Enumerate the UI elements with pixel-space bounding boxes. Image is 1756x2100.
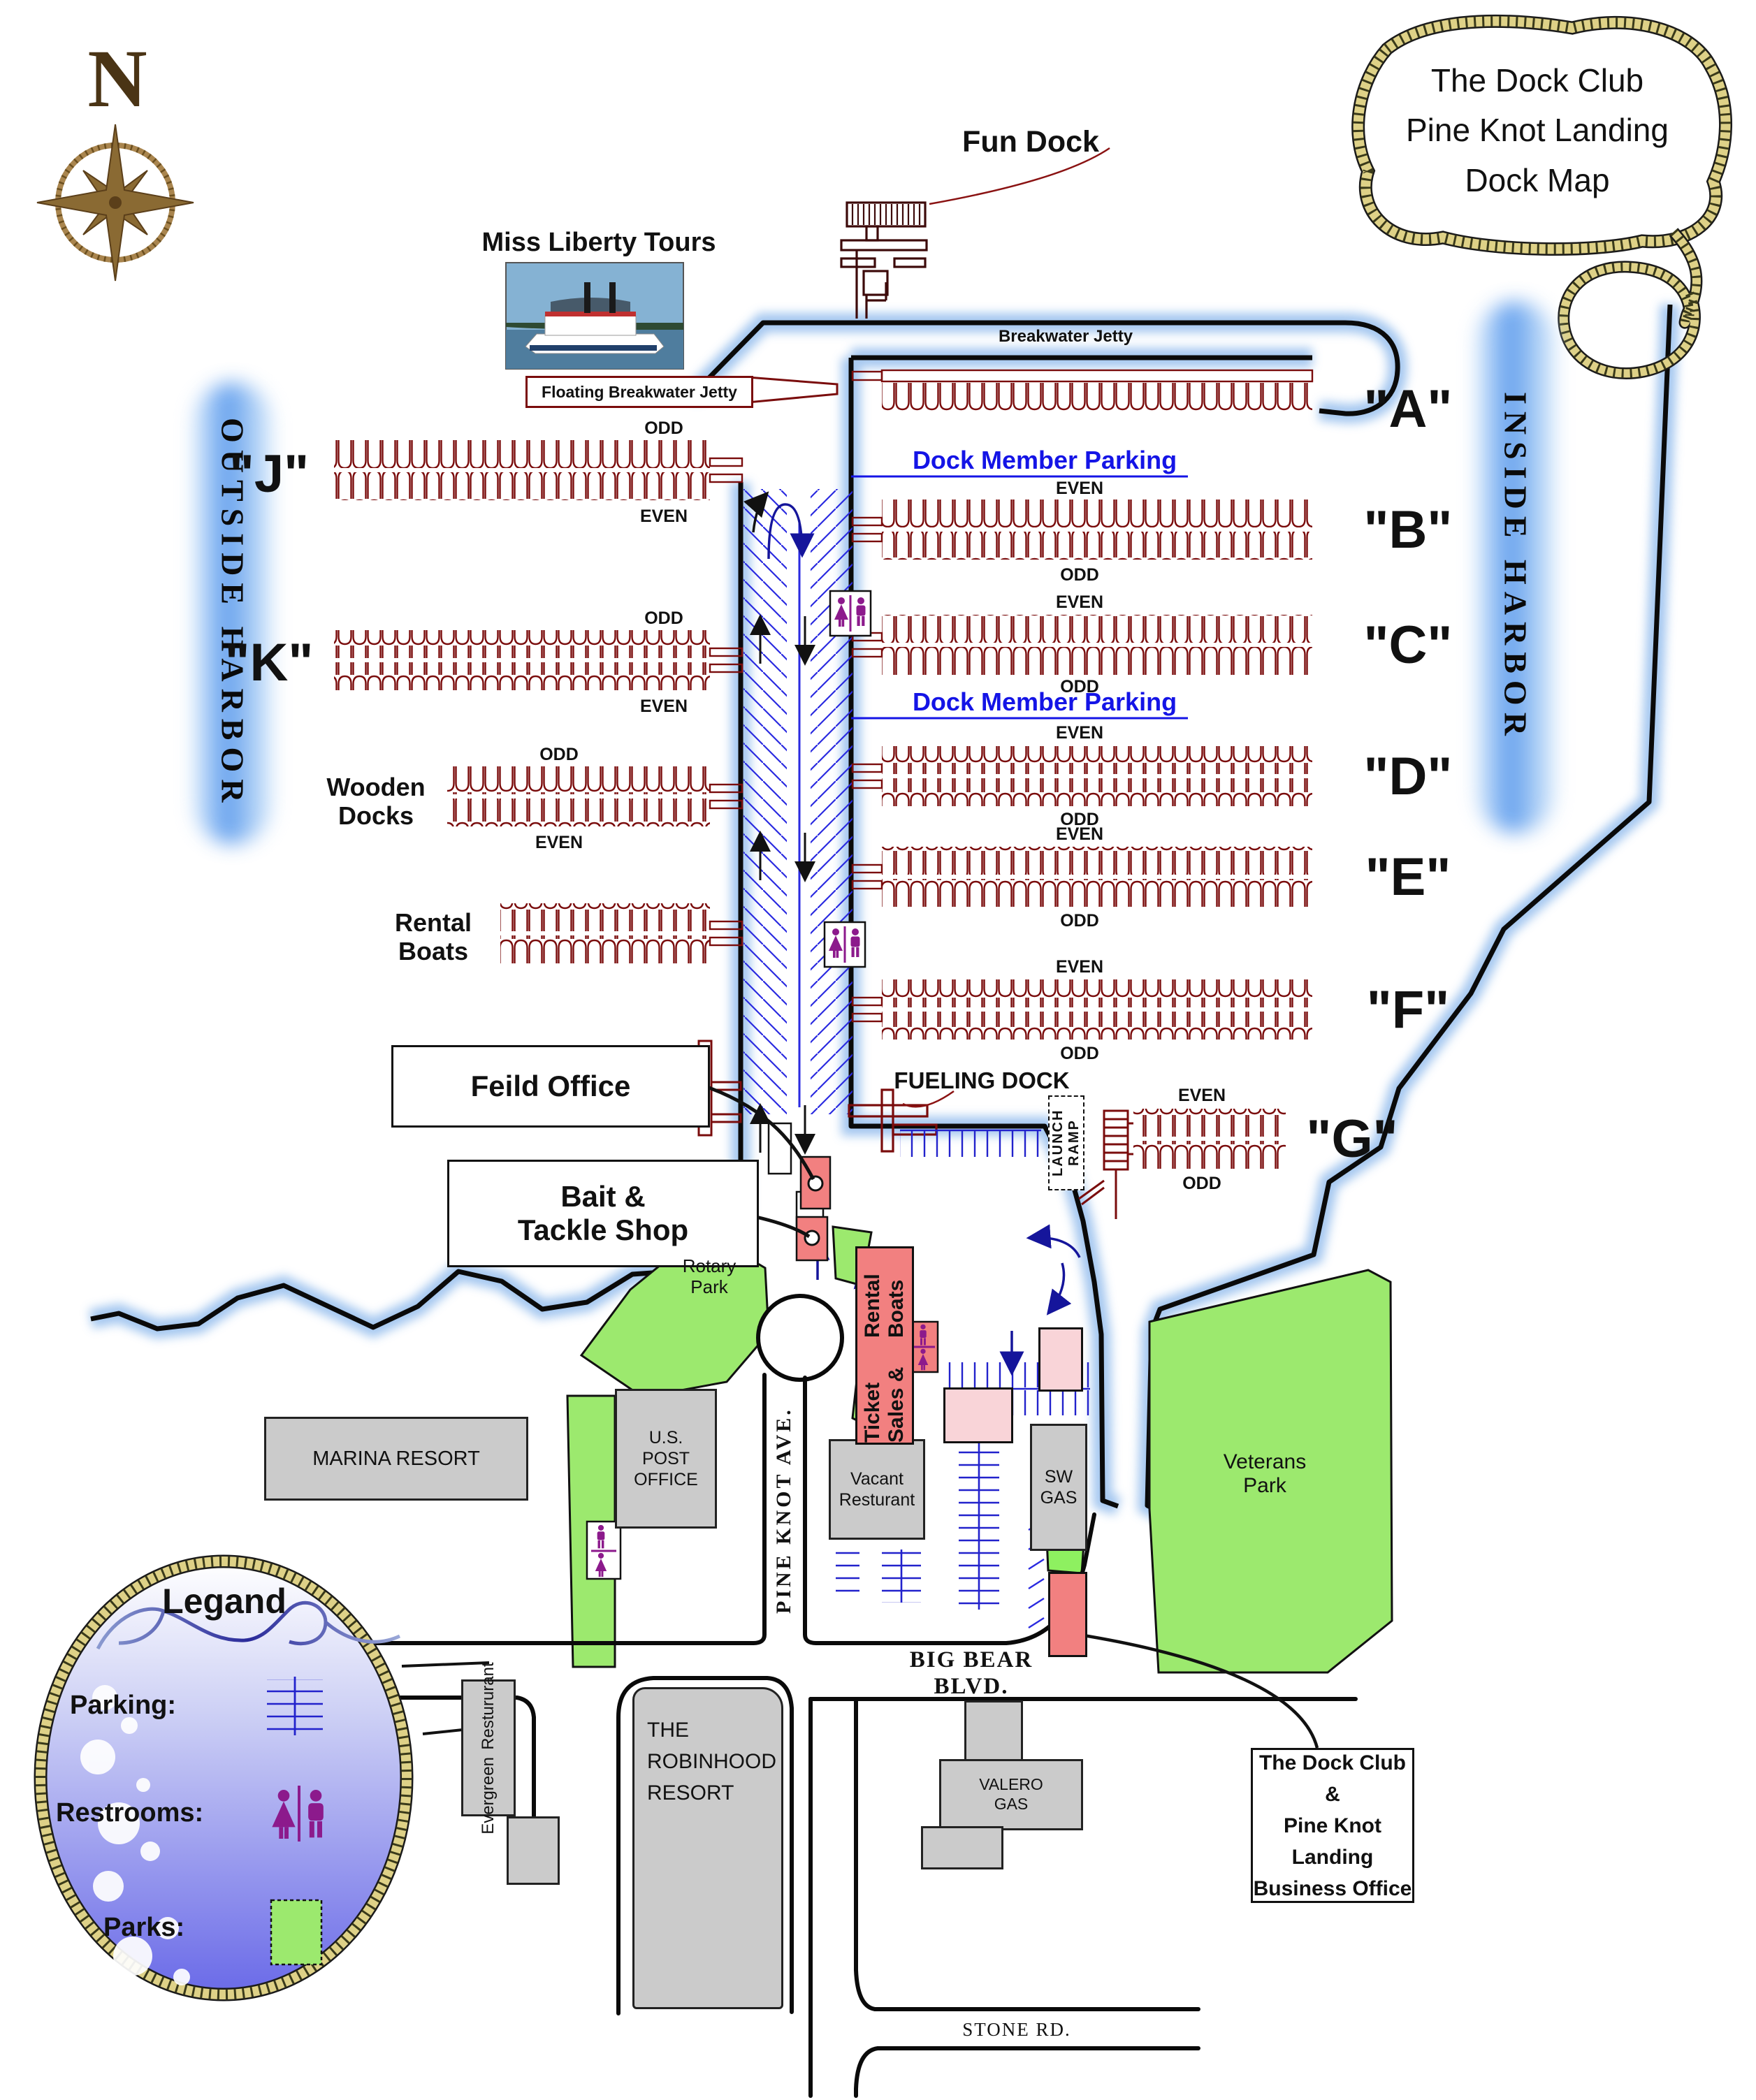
- bo-line-1: The Dock Club &: [1253, 1747, 1412, 1810]
- dock-f-even: EVEN: [1038, 956, 1122, 977]
- floating-breakwater-jetty-label: Floating Breakwater Jetty: [525, 376, 753, 408]
- swgas-line-1: SW: [1045, 1466, 1073, 1487]
- legend-parks-label: Parks:: [103, 1911, 229, 1945]
- dock-member-parking-1: Dock Member Parking: [901, 446, 1188, 475]
- fun-dock-structure: [841, 203, 927, 319]
- dock-a-structure: [852, 370, 1312, 381]
- marina-resort-text: MARINA RESORT: [312, 1447, 480, 1471]
- valero-outbuilding: [921, 1826, 1003, 1869]
- miss-liberty-label: Miss Liberty Tours: [470, 226, 728, 260]
- dock-g-label: "G": [1307, 1102, 1398, 1175]
- dock-g-odd: ODD: [1160, 1173, 1244, 1194]
- valero-stem: [964, 1700, 1023, 1765]
- dock-c-odd: ODD: [1038, 676, 1122, 697]
- evergreen-text: Evergreen Restururant: [479, 1662, 499, 1835]
- dock-j-structure: [334, 440, 742, 500]
- bo-line-3: Business Office: [1254, 1873, 1412, 1904]
- vacant-resturant-building: Vacant Resturant: [829, 1439, 925, 1540]
- restroom-ticket-sales: [910, 1322, 938, 1372]
- sw-gas-building: SW GAS: [1030, 1424, 1087, 1551]
- breakwater-jetty-label: Breakwater Jetty: [975, 326, 1156, 348]
- title-line-3: Dock Map: [1465, 156, 1609, 205]
- dock-j-label: "J": [224, 437, 314, 510]
- compass-icon: [37, 124, 194, 281]
- feild-office-callout: Feild Office: [391, 1045, 710, 1128]
- dock-b-structure: [852, 500, 1312, 560]
- po-line-3: OFFICE: [634, 1469, 698, 1490]
- dock-e-even: EVEN: [1038, 824, 1122, 845]
- dock-c-label: "C": [1363, 608, 1453, 681]
- dock-k-odd: ODD: [622, 608, 706, 629]
- stone-rd-label: STONE RD.: [943, 2018, 1090, 2043]
- legend-restrooms-label: Restrooms:: [56, 1797, 245, 1830]
- business-office-building: [1048, 1572, 1087, 1657]
- ticket-sales-building: Ticket Sales & Rental Boats: [855, 1246, 914, 1445]
- wooden-docks-structure: [447, 766, 742, 826]
- bo-line-2: Pine Knot Landing: [1253, 1810, 1412, 1873]
- rental-line-2: Boats: [398, 937, 468, 965]
- rental-line-1: Rental: [395, 908, 472, 937]
- valero-building: VALERO GAS: [939, 1759, 1083, 1830]
- fun-dock-label: Fun Dock: [943, 123, 1118, 162]
- business-office-callout: The Dock Club & Pine Knot Landing Busine…: [1251, 1748, 1414, 1903]
- restroom-r2: [825, 922, 865, 967]
- roundabout: [758, 1296, 842, 1380]
- restroom-r1: [830, 591, 871, 636]
- swgas-line-2: GAS: [1040, 1487, 1077, 1508]
- dock-f-odd: ODD: [1038, 1043, 1122, 1064]
- dock-k-even: EVEN: [622, 696, 706, 717]
- dock-d-label: "D": [1363, 740, 1453, 812]
- legend-parks-icon: [271, 1900, 321, 1964]
- rental-boats-structure: [500, 903, 742, 963]
- dock-k-label: "K": [224, 626, 314, 699]
- title-line-2: Pine Knot Landing: [1406, 105, 1669, 155]
- ticket-sales-text: Ticket Sales & Rental Boats: [861, 1248, 908, 1443]
- miss-liberty-photo: [506, 263, 683, 369]
- pink-building-2: [1038, 1327, 1083, 1392]
- dock-a-label: "A": [1363, 372, 1453, 445]
- launch-ramp-label: LAUNCH RAMP: [1048, 1095, 1084, 1190]
- rotary-line-1: Rotary: [683, 1256, 736, 1277]
- dock-f-structure: [852, 979, 1312, 1040]
- dock-d-even: EVEN: [1038, 722, 1122, 743]
- wooden-line-2: Docks: [338, 801, 414, 830]
- dock-c-structure: [852, 615, 1312, 675]
- evergreen-outbuilding: [507, 1816, 560, 1885]
- veterans-park-label: Veterans Park: [1188, 1439, 1342, 1509]
- title-line-1: The Dock Club: [1431, 56, 1643, 105]
- feild-office-text: Feild Office: [471, 1070, 631, 1103]
- marina-resort-building: MARINA RESORT: [264, 1417, 528, 1501]
- wooden-docks-label: Wooden Docks: [313, 764, 439, 838]
- legend-parking-label: Parking:: [70, 1689, 231, 1723]
- dock-c-even: EVEN: [1038, 592, 1122, 613]
- rental-boats-label: Rental Boats: [377, 900, 489, 974]
- dock-d-structure: [852, 746, 1312, 806]
- compass-north-label: N: [82, 34, 152, 124]
- post-office-building: U.S. POST OFFICE: [615, 1389, 717, 1529]
- map-title: The Dock Club Pine Knot Landing Dock Map: [1380, 43, 1695, 218]
- big-bear-blvd-label: BIG BEAR BLVD.: [870, 1658, 1073, 1689]
- legend-parking-icon: [267, 1677, 323, 1735]
- robinhood-building: THE ROBINHOOD RESORT: [632, 1687, 783, 2009]
- rh-line-3: RESORT: [647, 1777, 776, 1809]
- dock-e-odd: ODD: [1038, 910, 1122, 931]
- dock-g-structure: [1079, 1109, 1286, 1219]
- legend-title: Legand: [137, 1580, 312, 1624]
- fueling-dock-label: FUELING DOCK: [873, 1067, 1090, 1094]
- dock-j-odd: ODD: [622, 418, 706, 439]
- vets-line-1: Veterans: [1224, 1450, 1306, 1475]
- vacant-line-2: Resturant: [839, 1489, 915, 1510]
- rh-line-2: ROBINHOOD: [647, 1746, 776, 1777]
- dock-e-structure: [852, 847, 1312, 907]
- dock-map: N The Dock Club Pine Knot Landing Dock M…: [0, 0, 1756, 2100]
- dock-b-even: EVEN: [1038, 478, 1122, 499]
- evergreen-building: Evergreen Restururant: [461, 1679, 516, 1816]
- small-red-buildings: [797, 1157, 830, 1260]
- rh-line-1: THE: [647, 1714, 776, 1746]
- restroom-post-office: [587, 1522, 621, 1579]
- dock-b-label: "B": [1363, 493, 1453, 566]
- dock-k-structure: [334, 630, 742, 690]
- floating-jetty-pointer: [748, 377, 837, 402]
- dock-a-slips: [882, 383, 1312, 411]
- dock-j-even: EVEN: [622, 506, 706, 527]
- fairway-hatch: [743, 489, 852, 1114]
- po-line-1: U.S.: [649, 1427, 683, 1448]
- bait-line-1: Bait &: [560, 1180, 645, 1213]
- pine-knot-ave-label: PINE KNOT AVE.: [768, 1390, 800, 1631]
- vets-line-2: Park: [1243, 1474, 1286, 1499]
- valero-line-2: GAS: [994, 1795, 1029, 1814]
- po-line-2: POST: [642, 1448, 690, 1469]
- rotary-line-2: Park: [690, 1277, 727, 1298]
- dock-e-label: "E": [1363, 840, 1453, 913]
- inside-harbor-label: INSIDE HARBOR: [1487, 307, 1544, 827]
- dock-f-label: "F": [1363, 973, 1453, 1046]
- vacant-line-1: Vacant: [850, 1468, 904, 1489]
- wooden-line-1: Wooden: [326, 773, 425, 801]
- pink-building-1: [943, 1387, 1013, 1443]
- valero-line-1: VALERO: [979, 1775, 1043, 1795]
- dock-b-odd: ODD: [1038, 564, 1122, 585]
- dock-g-even: EVEN: [1160, 1085, 1244, 1106]
- wooden-odd: ODD: [517, 744, 601, 765]
- wooden-even: EVEN: [517, 832, 601, 853]
- rotary-park-label: Rotary Park: [667, 1248, 751, 1306]
- bait-line-2: Tackle Shop: [518, 1213, 688, 1247]
